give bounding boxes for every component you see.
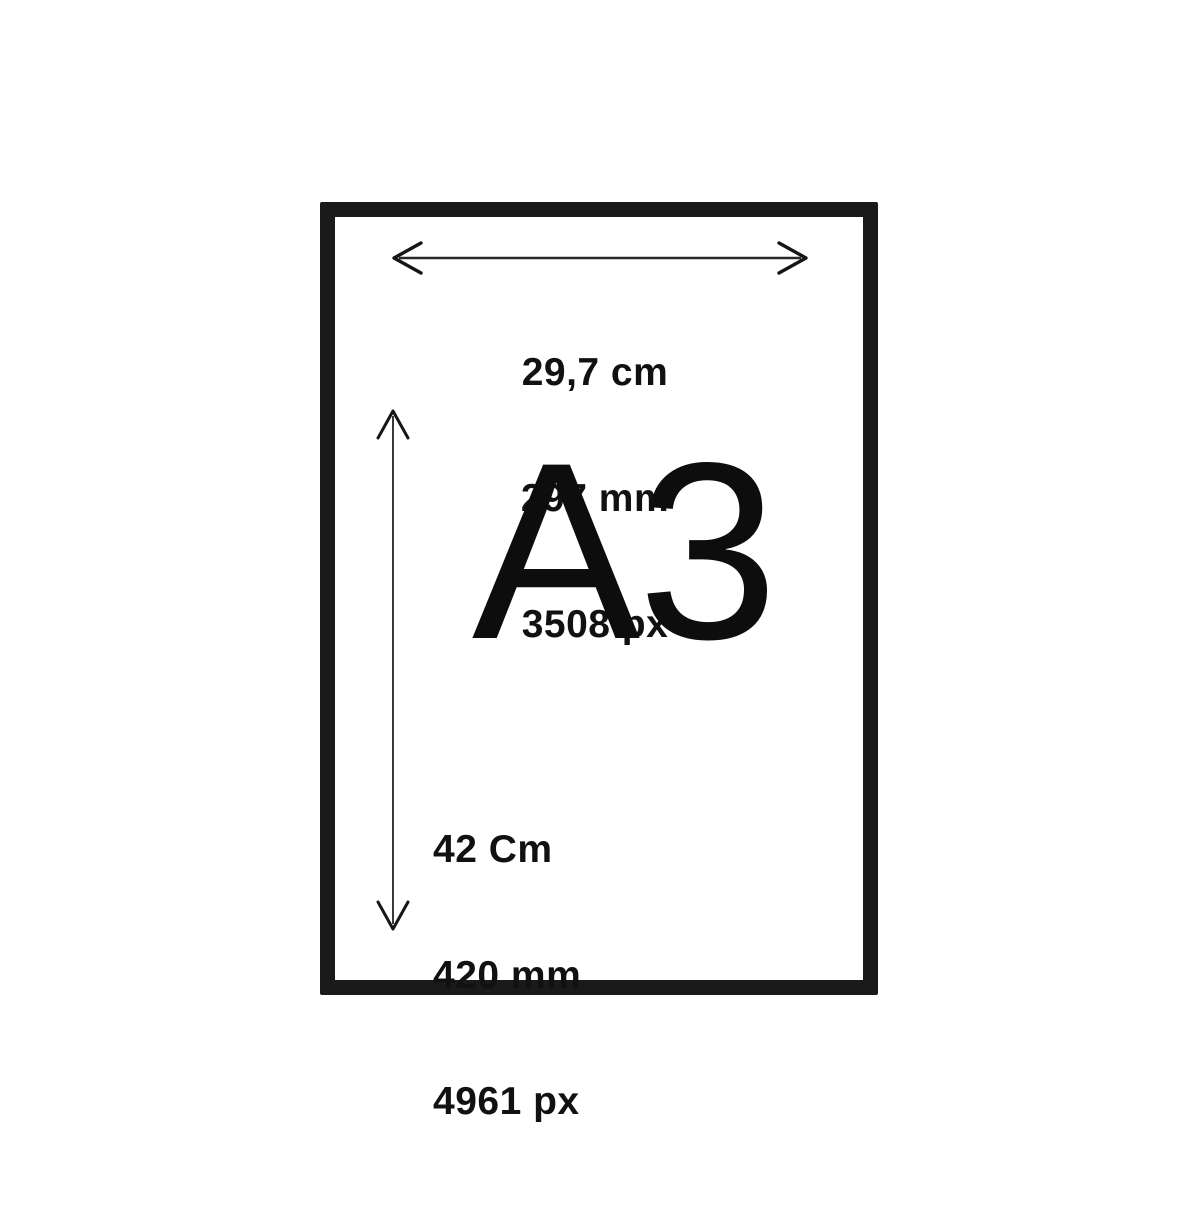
- paper-size-label-box: A3: [438, 426, 810, 678]
- a3-paper-size-diagram: 29,7 cm 297 mm 3508 px A3 42 Cm 420 mm 4…: [0, 0, 1200, 1200]
- vertical-double-arrow-icon: [375, 402, 411, 938]
- height-mm-value: 420 mm: [433, 955, 581, 997]
- height-dimension-label: 42 Cm 420 mm 4961 px: [433, 745, 581, 1207]
- width-cm-value: 29,7 cm: [445, 352, 745, 394]
- paper-size-label: A3: [472, 426, 776, 678]
- height-px-value: 4961 px: [433, 1081, 581, 1123]
- height-cm-value: 42 Cm: [433, 829, 581, 871]
